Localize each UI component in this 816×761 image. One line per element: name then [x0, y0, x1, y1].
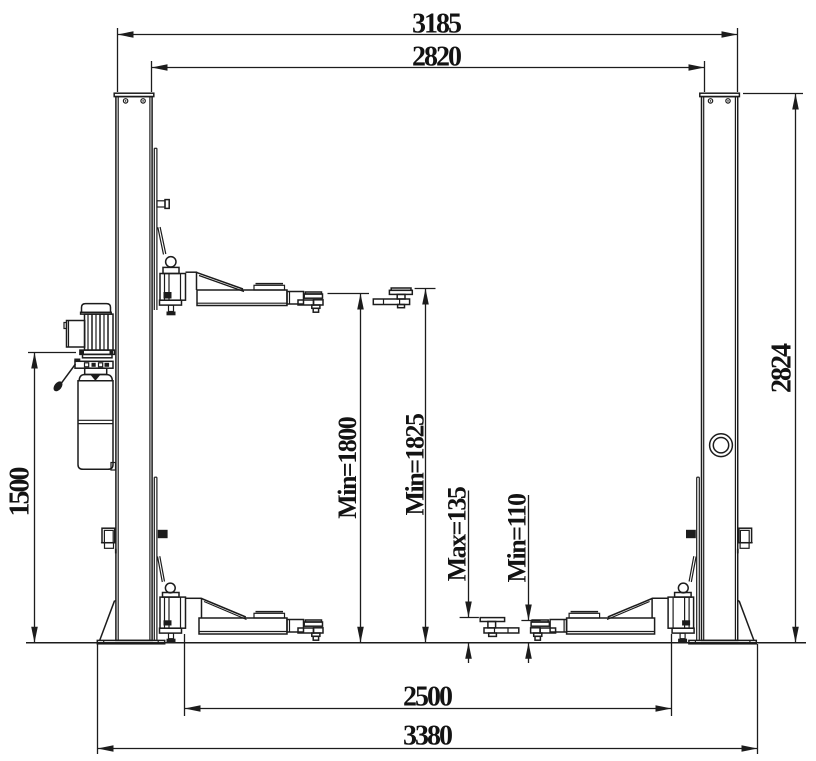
svg-text:1500: 1500 [5, 468, 36, 517]
svg-text:2820: 2820 [412, 42, 461, 73]
svg-text:Min=1825: Min=1825 [401, 413, 430, 516]
svg-text:3185: 3185 [412, 9, 461, 40]
svg-text:Min=110: Min=110 [503, 493, 532, 583]
svg-text:2824: 2824 [767, 343, 798, 393]
svg-text:2500: 2500 [403, 682, 452, 713]
svg-text:3380: 3380 [403, 721, 452, 752]
svg-text:Max=135: Max=135 [443, 486, 472, 581]
svg-text:Min=1800: Min=1800 [333, 416, 362, 519]
